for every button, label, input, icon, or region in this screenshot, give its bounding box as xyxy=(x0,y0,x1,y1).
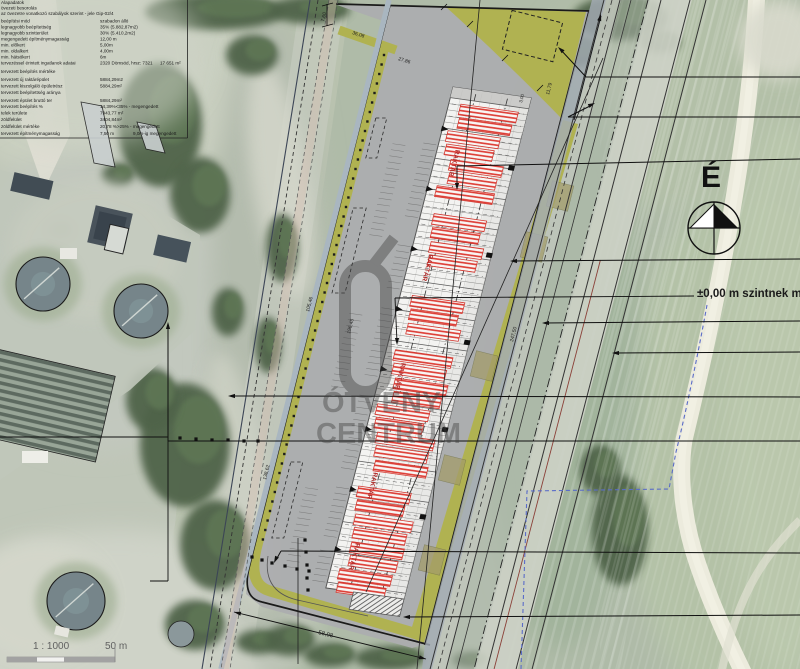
svg-text:tervezett építménymagasság: tervezett építménymagasság xyxy=(1,131,60,136)
svg-text:É: É xyxy=(701,160,721,194)
svg-text:tervezett épület bruttó ter: tervezett épület bruttó ter xyxy=(1,98,53,103)
svg-text:Alapadatok: Alapadatok xyxy=(1,0,25,5)
svg-text:50 m: 50 m xyxy=(105,641,127,652)
svg-text:2320 Dömsöd, hrsz: 7321: 2320 Dömsöd, hrsz: 7321 xyxy=(100,61,153,66)
svg-text:1 : 1000: 1 : 1000 xyxy=(33,641,70,652)
svg-text:min. oldalkert: min. oldalkert xyxy=(1,49,29,54)
svg-text:±0,00 m szintnek me: ±0,00 m szintnek me xyxy=(697,288,800,300)
svg-text:tervezett beépítés mértéke: tervezett beépítés mértéke xyxy=(1,69,56,74)
svg-text:zöldfelület mértéke: zöldfelület mértéke xyxy=(1,124,40,129)
svg-text:3404,84m²: 3404,84m² xyxy=(100,117,122,122)
svg-text:5,00m: 5,00m xyxy=(100,43,113,48)
svg-text:legnagyobb szintterület: legnagyobb szintterület xyxy=(1,31,49,36)
svg-text:tervezett kiszolgáló épületrés: tervezett kiszolgáló épületrész xyxy=(1,84,63,89)
svg-text:az övezetre vonatkozó szabályo: az övezetre vonatkozó szabályok szerint … xyxy=(1,11,114,16)
svg-text:szabadon álló: szabadon álló xyxy=(100,19,129,24)
svg-text:ÓTVÉNY: ÓTVÉNY xyxy=(322,385,441,419)
svg-text:min. hátsókert: min. hátsókert xyxy=(1,55,31,60)
svg-text:övezeti besorolás: övezeti besorolás xyxy=(1,6,37,11)
svg-text:14,39%<35% - megengedett: 14,39%<35% - megengedett xyxy=(100,104,159,109)
svg-text:5884,29m2: 5884,29m2 xyxy=(100,77,123,82)
svg-text:zöldfelület: zöldfelület xyxy=(1,117,22,122)
svg-text:17 651 m²: 17 651 m² xyxy=(160,61,181,66)
svg-text:7943,77 m²: 7943,77 m² xyxy=(100,111,124,116)
svg-text:5884,29m²: 5884,29m² xyxy=(100,84,122,89)
svg-text:5884,29m²: 5884,29m² xyxy=(100,98,122,103)
svg-text:tervezett beépítés %: tervezett beépítés % xyxy=(1,104,43,109)
svg-text:tervezéssel érintett ingatlano: tervezéssel érintett ingatlanok adatai xyxy=(1,61,76,66)
svg-text:megengedett építménymagasság: megengedett építménymagasság xyxy=(1,37,70,42)
svg-text:4,00m: 4,00m xyxy=(100,49,113,54)
svg-text:6m: 6m xyxy=(100,55,107,60)
svg-text:tervezett új raktárépület: tervezett új raktárépület xyxy=(1,77,50,82)
svg-text:tervezett beépítettség aránya: tervezett beépítettség aránya xyxy=(1,90,61,95)
svg-text:min. előkert: min. előkert xyxy=(1,43,25,48)
svg-text:12,00 m: 12,00 m xyxy=(100,37,117,42)
svg-text:7,50 m: 7,50 m xyxy=(100,131,114,136)
svg-text:CENTRUM: CENTRUM xyxy=(316,418,461,450)
svg-text:30% (5.410,2m2): 30% (5.410,2m2) xyxy=(100,31,136,36)
svg-text:beépítési mód: beépítési mód xyxy=(1,19,30,24)
svg-text:legnagyobb beépítettség: legnagyobb beépítettség xyxy=(1,25,52,30)
svg-text:20,78 %>25% - megengedett: 20,78 %>25% - megengedett xyxy=(100,124,160,129)
svg-text:telek területe: telek területe xyxy=(1,111,28,116)
svg-text:9,0m-ig megengedett: 9,0m-ig megengedett xyxy=(133,131,177,136)
svg-text:35% (5.882,87m2): 35% (5.882,87m2) xyxy=(100,25,138,30)
